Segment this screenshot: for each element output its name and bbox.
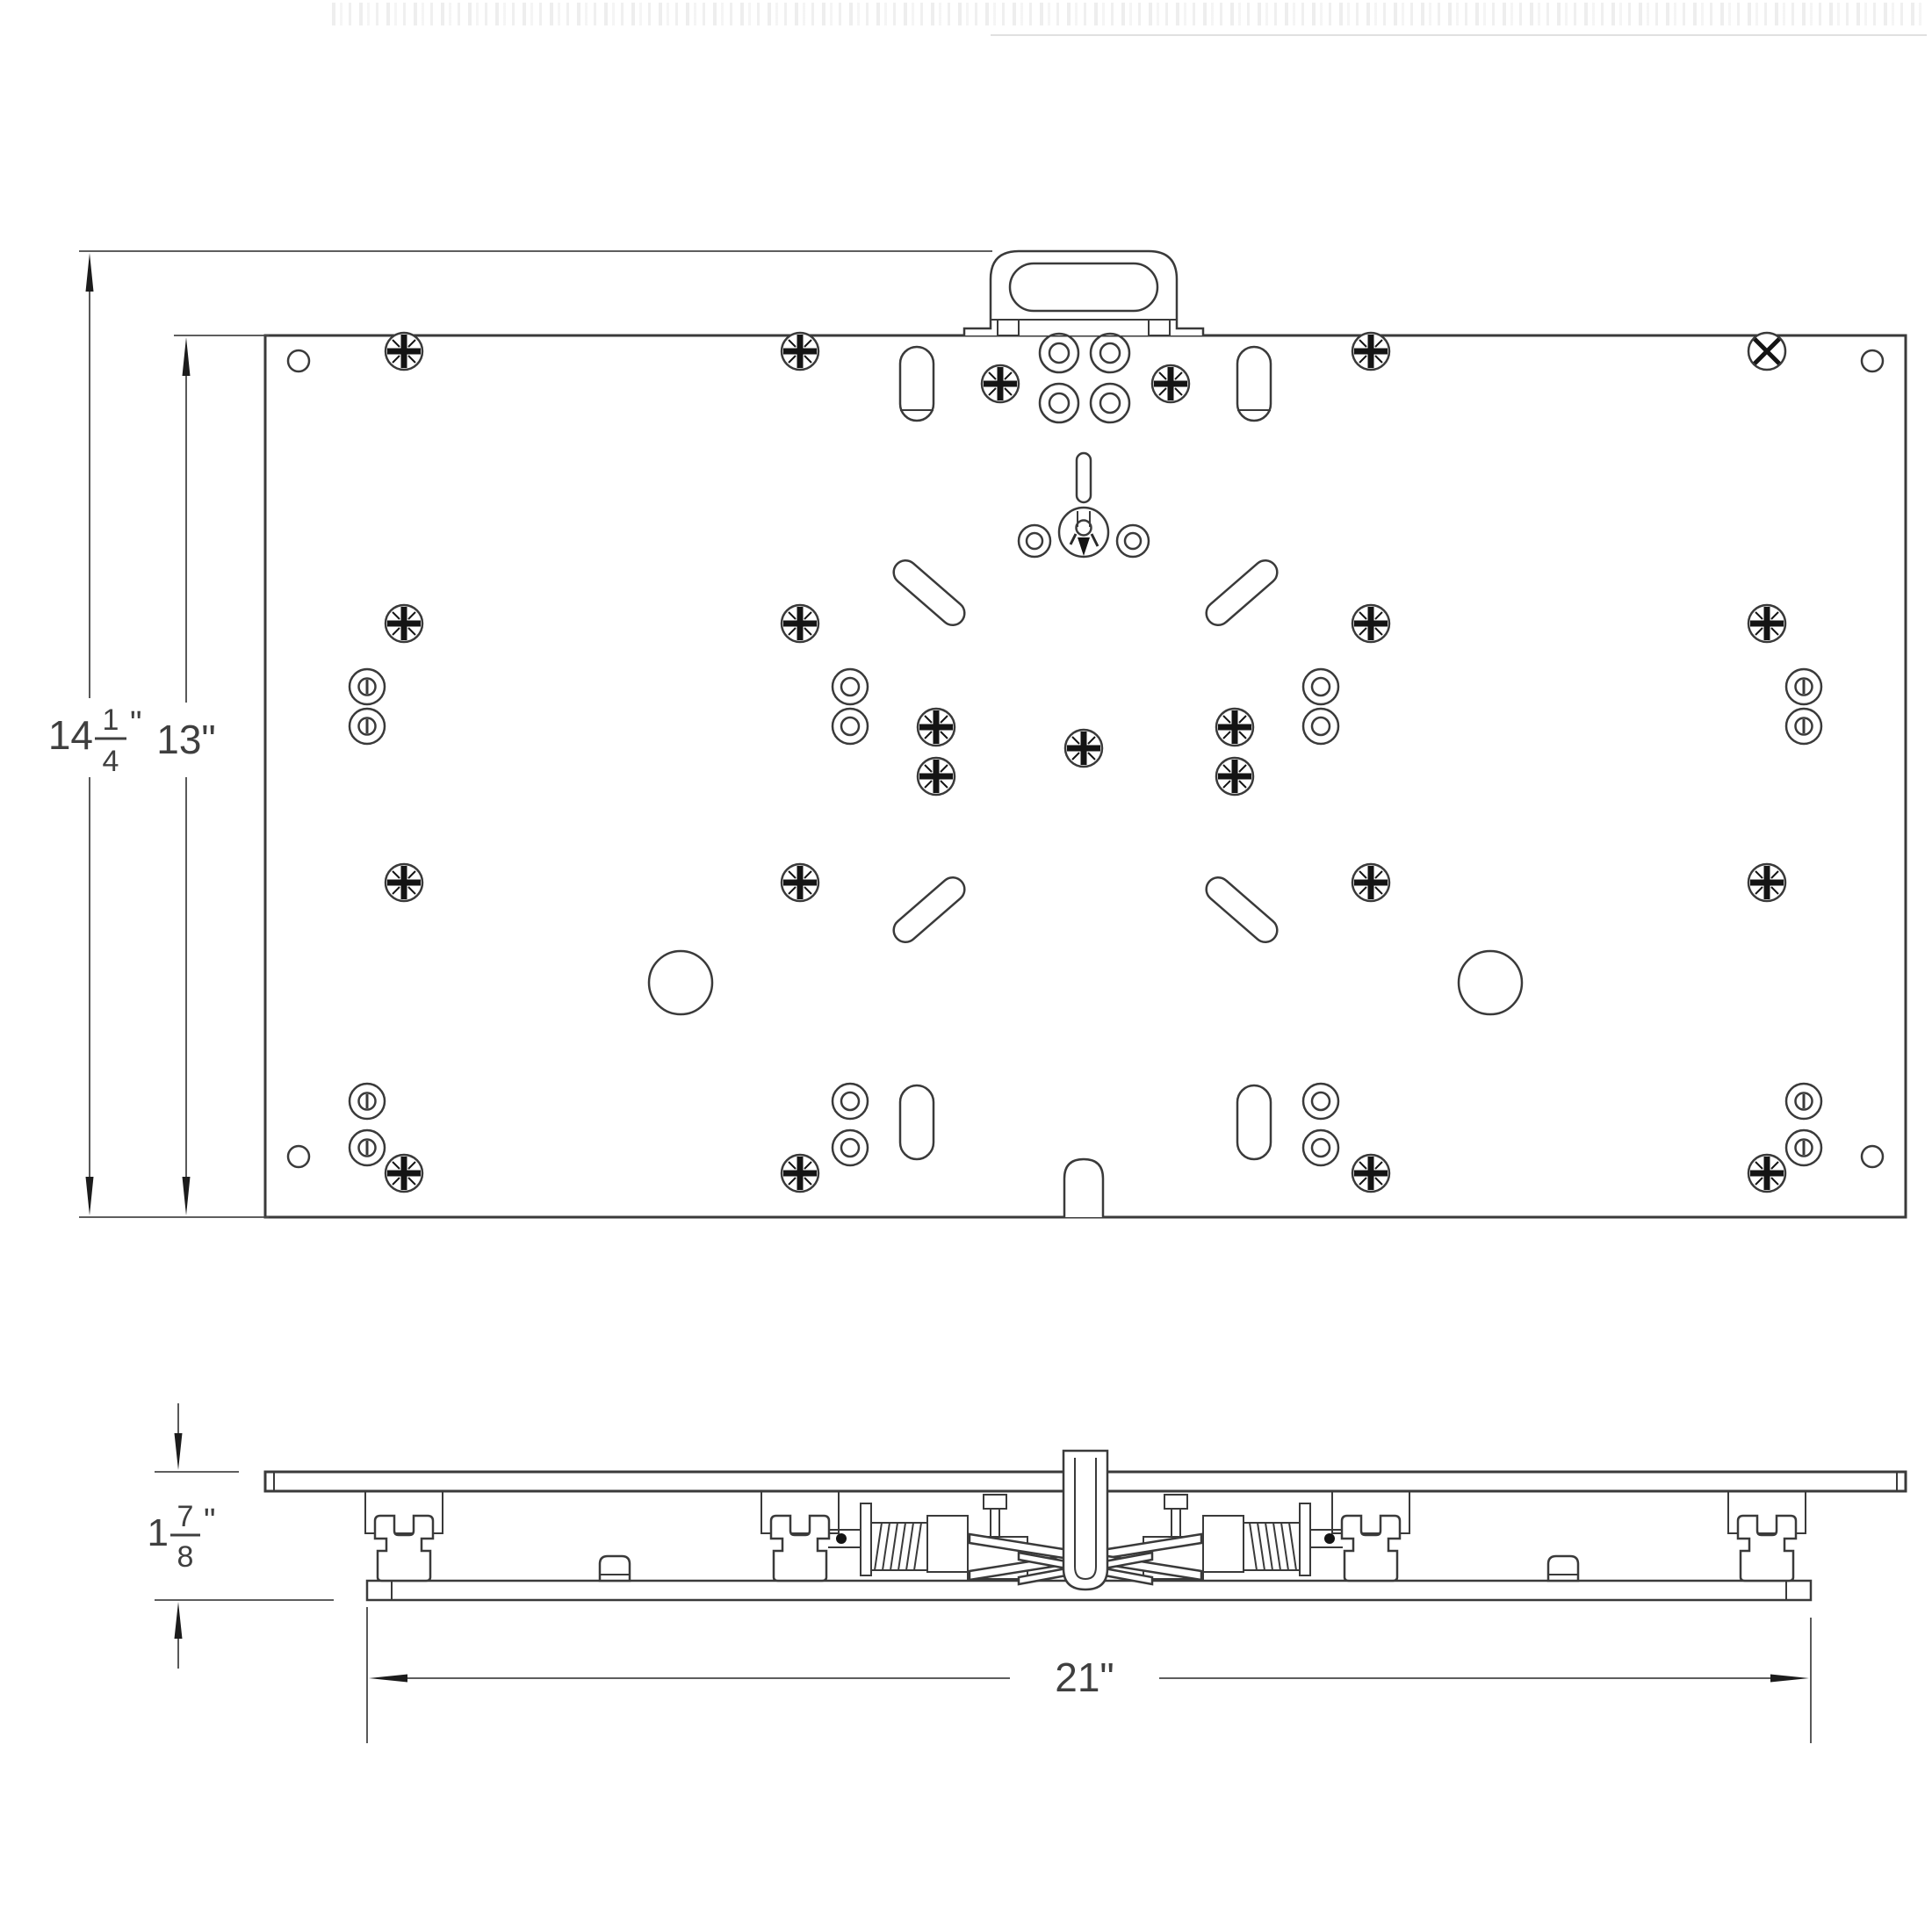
phillips-screw-icon	[1352, 333, 1389, 370]
dim-rail-label: 21"	[1055, 1654, 1114, 1700]
flathead-screw-icon	[1748, 333, 1785, 370]
roller-truck	[1738, 1516, 1796, 1581]
stop-block	[600, 1556, 630, 1581]
dim-overall-whole: 14	[48, 712, 93, 758]
phillips-screw-icon	[918, 709, 955, 746]
phillips-screw-icon	[1352, 605, 1389, 642]
phillips-screw-icon	[1748, 1155, 1785, 1192]
center-post	[1063, 1451, 1107, 1590]
phillips-screw-icon	[1352, 1155, 1389, 1192]
roller-truck	[1342, 1516, 1400, 1581]
phillips-screw-icon	[782, 333, 818, 370]
phillips-screw-icon	[386, 605, 422, 642]
phillips-screw-icon	[1748, 605, 1785, 642]
dim-profile-whole: 1	[148, 1511, 169, 1554]
dim-profile-numerator: 7	[177, 1500, 194, 1533]
phillips-screw-icon	[782, 1155, 818, 1192]
roller-truck	[771, 1516, 829, 1581]
dim-overall-numerator: 1	[103, 703, 119, 737]
phillips-screw-icon	[1216, 709, 1253, 746]
dimension-profile-height: 1 7 8 "	[148, 1403, 334, 1669]
phillips-screw-icon	[918, 758, 955, 795]
phillips-screw-icon	[982, 365, 1019, 402]
phillips-screw-icon	[782, 605, 818, 642]
drawing-sheet: 14 1 4 " 13"	[0, 0, 1932, 1932]
drawing-svg: 14 1 4 " 13"	[0, 0, 1932, 1932]
dim-profile-unit: "	[204, 1503, 216, 1539]
center-phillips-screw-icon	[1065, 730, 1102, 767]
phillips-screw-icon	[1152, 365, 1189, 402]
dim-profile-denominator: 8	[177, 1540, 194, 1574]
dimension-plate-height: 13"	[156, 335, 269, 1215]
side-view	[265, 1451, 1906, 1600]
phillips-screw-icon	[782, 864, 818, 901]
phillips-screw-icon	[1748, 864, 1785, 901]
mounting-plate-outline	[265, 335, 1906, 1217]
carry-handle	[964, 251, 1203, 335]
bottom-notch	[1064, 1159, 1103, 1217]
phillips-screw-icon	[386, 1155, 422, 1192]
top-view	[265, 251, 1906, 1217]
phillips-screw-icon	[1352, 864, 1389, 901]
dimension-rail-length: 21"	[367, 1607, 1811, 1743]
dim-overall-unit: "	[130, 705, 142, 742]
phillips-screw-icon	[386, 333, 422, 370]
dim-overall-denominator: 4	[103, 745, 119, 778]
stop-block	[1548, 1556, 1578, 1581]
roller-truck	[375, 1516, 433, 1581]
dim-plate-label: 13"	[156, 717, 216, 762]
phillips-screw-icon	[386, 864, 422, 901]
phillips-screw-icon	[1216, 758, 1253, 795]
